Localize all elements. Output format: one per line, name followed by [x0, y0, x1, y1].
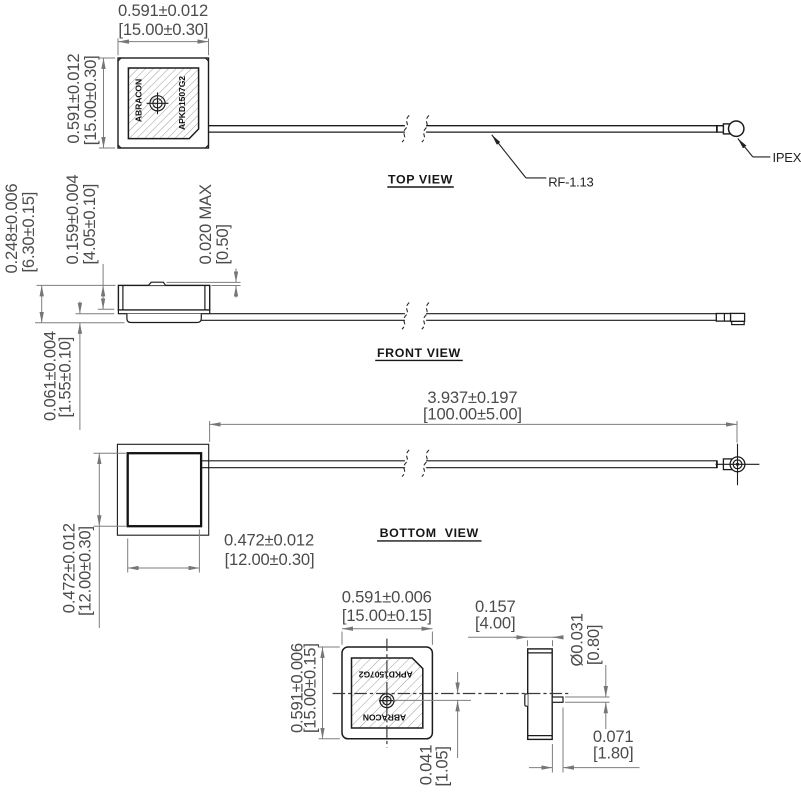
svg-text:[1.55±0.10]: [1.55±0.10] [56, 337, 75, 418]
svg-text:TOP VIEW: TOP VIEW [388, 172, 453, 186]
svg-text:0.591±0.006: 0.591±0.006 [342, 587, 432, 606]
svg-text:[6.30±0.15]: [6.30±0.15] [19, 192, 38, 273]
svg-text:[1.05]: [1.05] [432, 746, 451, 786]
svg-text:0.472±0.012: 0.472±0.012 [224, 531, 314, 550]
svg-text:[0.80]: [0.80] [584, 625, 603, 665]
svg-text:ABRACON: ABRACON [363, 713, 406, 723]
svg-text:[15.00±0.15]: [15.00±0.15] [342, 606, 432, 625]
svg-text:[1.80]: [1.80] [593, 744, 633, 763]
svg-text:RF-1.13: RF-1.13 [548, 174, 593, 189]
svg-text:0.591±0.012: 0.591±0.012 [118, 1, 208, 20]
svg-text:[12.00±0.30]: [12.00±0.30] [76, 526, 95, 616]
svg-text:ABRACON: ABRACON [133, 79, 143, 122]
svg-text:IPEX: IPEX [773, 150, 801, 165]
svg-text:FRONT VIEW: FRONT VIEW [377, 346, 461, 360]
svg-text:[4.05±0.10]: [4.05±0.10] [80, 184, 99, 265]
svg-text:[15.00±0.15]: [15.00±0.15] [300, 643, 319, 733]
svg-text:APKD1507G2: APKD1507G2 [177, 76, 187, 130]
svg-text:[15.00±0.30]: [15.00±0.30] [118, 20, 208, 39]
svg-text:[0.50]: [0.50] [213, 224, 232, 264]
svg-text:APKD1507G2: APKD1507G2 [359, 670, 413, 680]
svg-text:[15.00±0.30]: [15.00±0.30] [81, 55, 100, 145]
svg-text:[4.00]: [4.00] [475, 613, 515, 632]
svg-text:BOTTOM VIEW: BOTTOM VIEW [380, 526, 479, 540]
svg-text:[100.00±5.00]: [100.00±5.00] [423, 405, 522, 424]
svg-text:[12.00±0.30]: [12.00±0.30] [225, 550, 315, 569]
